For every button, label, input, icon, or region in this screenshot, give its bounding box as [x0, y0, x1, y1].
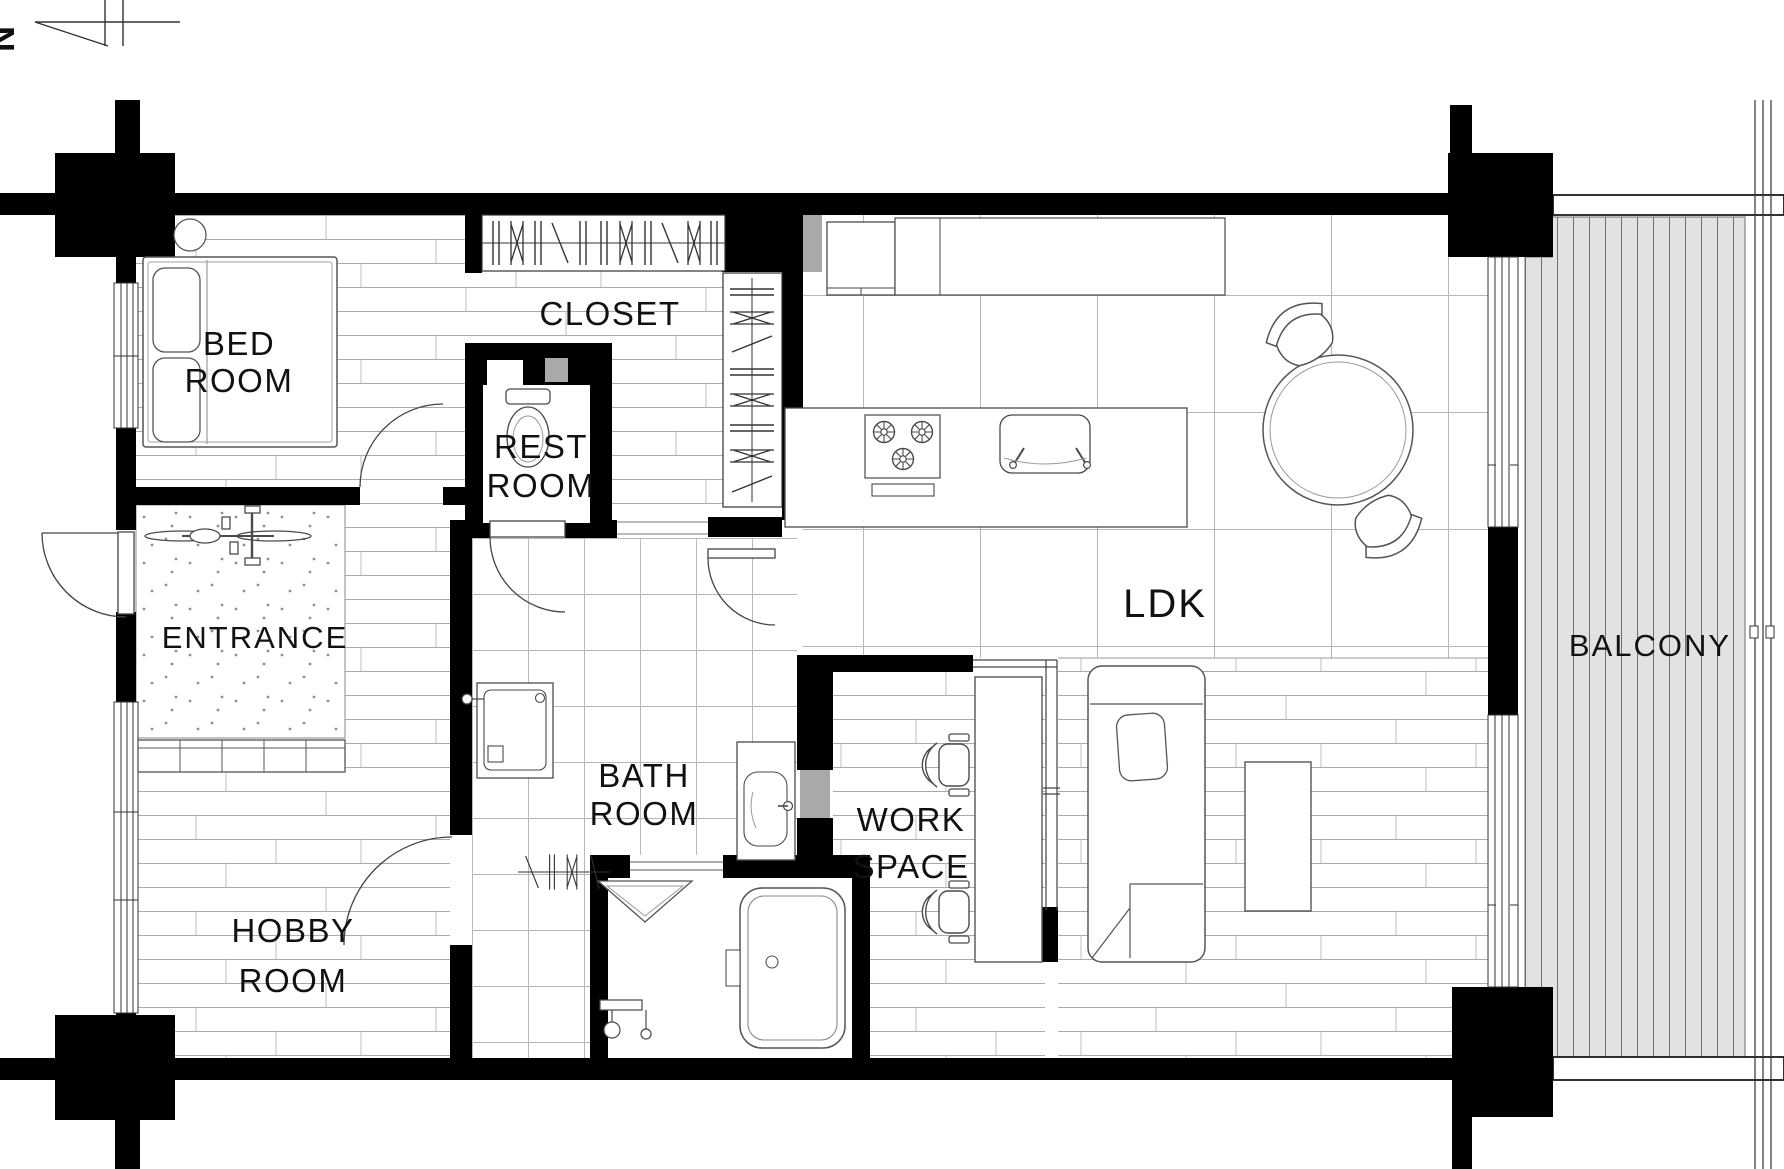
closet-hanger-rack-icon	[482, 215, 725, 271]
gas-stove-icon	[865, 415, 940, 478]
north-label: N	[0, 26, 22, 52]
sofa-pillow-icon	[1116, 712, 1168, 781]
workspace-door-panel	[800, 770, 830, 818]
kitchen-island-icon	[785, 408, 1187, 527]
restroom-label-line2: ROOM	[487, 467, 596, 504]
wall-bottom	[0, 1058, 1452, 1080]
wall-stub-top-right	[1450, 105, 1472, 153]
balcony-sliding-door-lower-icon	[1488, 715, 1518, 987]
bath-folding-door-icon	[630, 855, 723, 878]
hobby-label-line1: HOBBY	[231, 912, 354, 949]
wall-left-b	[116, 428, 136, 530]
balcony-parapet-bottom	[1553, 1057, 1784, 1080]
ldk-label: LDK	[1123, 582, 1207, 626]
floor-plan-canvas: BED ROOM CLOSET REST ROOM ENTRANCE HOBBY…	[0, 0, 1784, 1169]
dining-table-icon	[1263, 355, 1413, 505]
nightstand-icon	[174, 219, 206, 251]
shoe-cabinet-icon	[138, 740, 345, 772]
railing-joint	[1766, 626, 1774, 638]
bathtub-icon	[726, 888, 845, 1048]
pillow-icon	[153, 268, 200, 352]
bath-label-line2: ROOM	[590, 795, 699, 832]
wall-left-a	[116, 257, 136, 283]
floor-plan: BED ROOM CLOSET REST ROOM ENTRANCE HOBBY…	[0, 0, 1784, 1169]
grill-icon	[872, 484, 934, 496]
work-label-line1: WORK	[857, 801, 966, 838]
wall-left-c	[116, 612, 136, 702]
wall-hall-south-c	[708, 517, 782, 537]
wall-washroom-left-b	[450, 945, 472, 1058]
wall-left-d	[116, 1013, 136, 1058]
hobby-window-icon	[114, 702, 138, 1013]
wall-closet-stub	[465, 215, 482, 273]
column-top-right	[1448, 153, 1553, 257]
column-top-left	[55, 153, 175, 257]
kitchen-sink-icon	[1000, 415, 1090, 473]
bedroom-label-line2: ROOM	[185, 362, 294, 399]
refrigerator-icon	[827, 222, 895, 295]
balcony-sliding-door-upper-icon	[1488, 257, 1518, 527]
kitchen-counter-icon	[895, 218, 1225, 295]
desk-icon	[975, 677, 1042, 962]
balcony-parapet-top	[1553, 195, 1784, 215]
work-label-line2: SPACE	[853, 848, 970, 885]
wall-closet-block	[722, 197, 785, 272]
entrance-label: ENTRANCE	[162, 620, 349, 655]
wall-washroom-right-a	[797, 655, 833, 770]
kitchen-entry-panel	[803, 215, 822, 272]
bedroom-window-icon	[114, 283, 138, 428]
partition-end-cap	[1042, 907, 1058, 962]
wall-right-mid	[1488, 527, 1518, 715]
closet-label: CLOSET	[539, 295, 680, 332]
entrance-door-icon	[42, 532, 134, 617]
balcony-label: BALCONY	[1569, 628, 1731, 663]
vanity-sink-icon	[737, 742, 795, 860]
sofa-icon	[1088, 666, 1205, 962]
wall-bedroom-hall-a	[135, 487, 360, 505]
restroom-label-line1: REST	[494, 428, 588, 465]
wall-bedroom-hall-b	[443, 487, 465, 505]
hobby-label-line2: ROOM	[239, 962, 348, 999]
wall-restroom-left	[465, 385, 483, 523]
wall-stub-bottom-right	[1452, 1117, 1472, 1169]
coffee-table-icon	[1245, 762, 1311, 911]
restroom-duct-panel	[545, 358, 568, 382]
wall-bath-right	[852, 878, 870, 1058]
wall-stub-bottom-left	[115, 1120, 140, 1169]
north-arrow-icon: N	[0, 0, 180, 52]
wall-stub-top-left	[115, 100, 140, 153]
wall-workspace-top	[833, 655, 973, 672]
bedroom-label-line1: BED	[203, 325, 275, 362]
bath-label-line1: BATH	[598, 757, 690, 794]
wall-washroom-left-a	[450, 538, 472, 835]
wardrobe-icon	[723, 273, 782, 507]
column-bottom-right	[1452, 987, 1553, 1117]
column-bottom-left	[55, 1015, 175, 1120]
washroom-lower-tile	[472, 875, 590, 1058]
hall-threshold	[617, 522, 708, 534]
restroom-niche	[487, 360, 523, 385]
railing-joint	[1750, 626, 1758, 638]
